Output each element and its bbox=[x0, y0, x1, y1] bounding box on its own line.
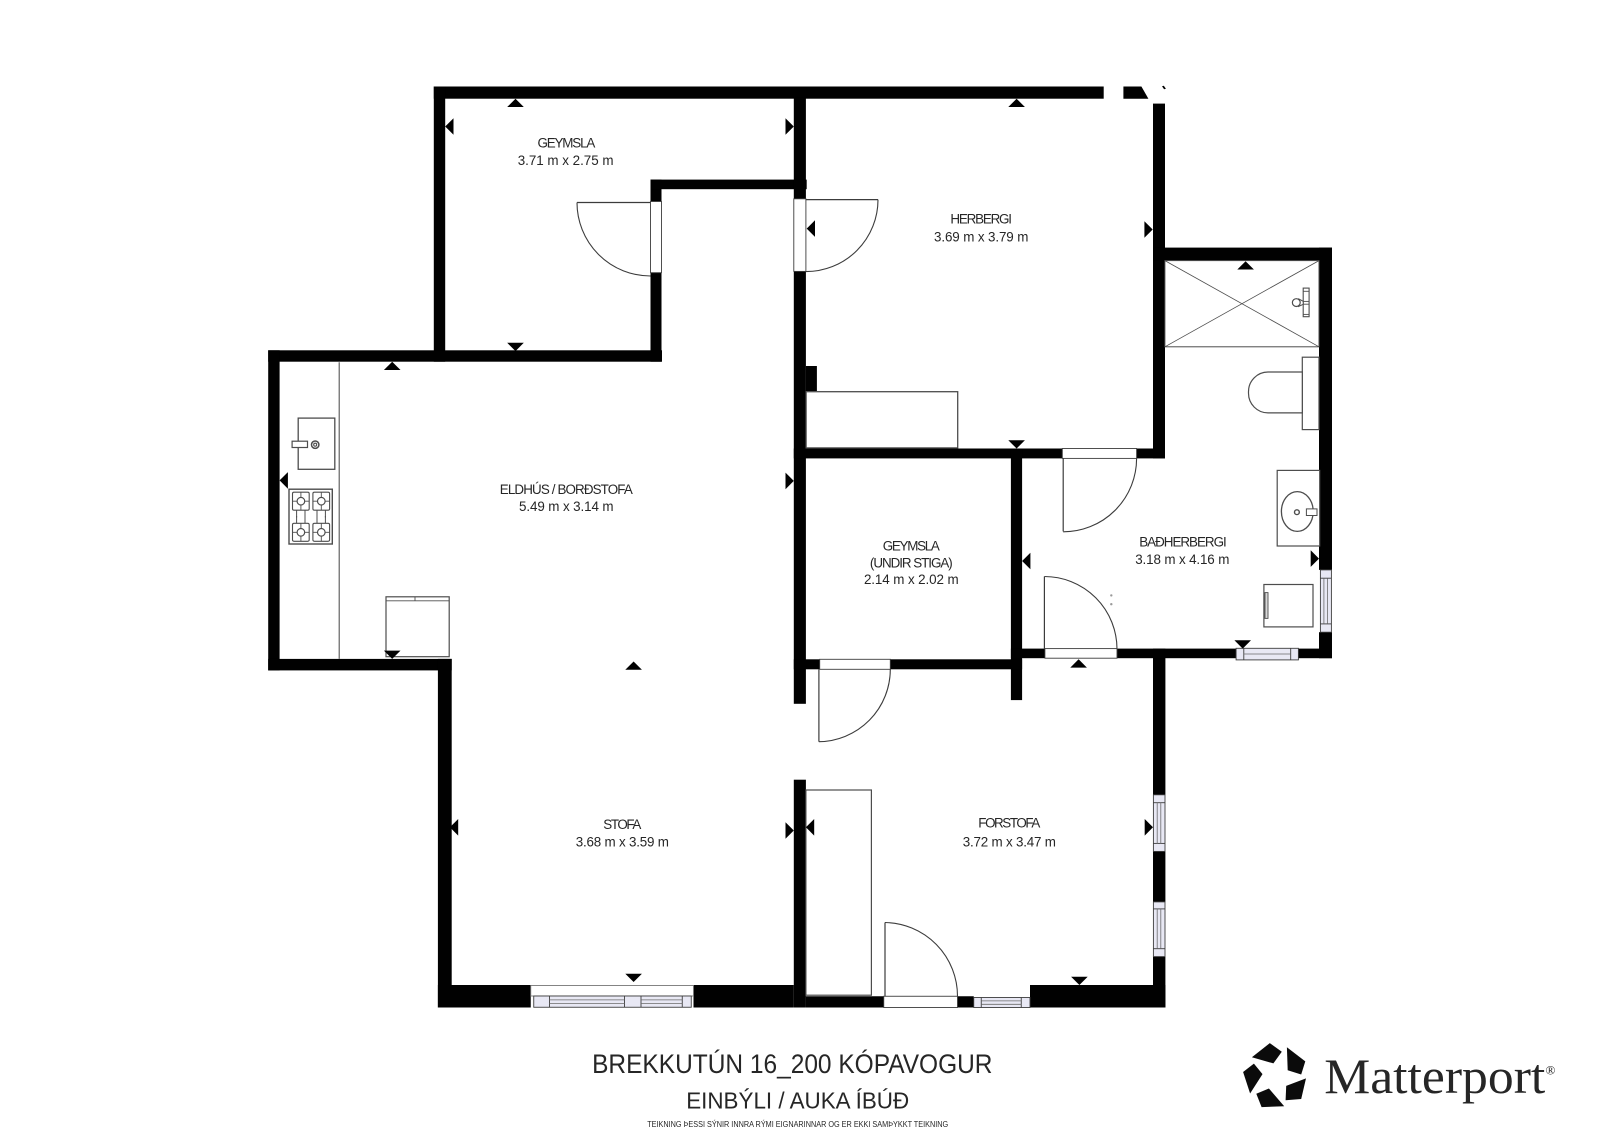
svg-text:(UNDIR STIGA): (UNDIR STIGA) bbox=[870, 556, 953, 571]
svg-text:GEYMSLA: GEYMSLA bbox=[538, 136, 596, 151]
svg-text:HERBERGI: HERBERGI bbox=[950, 212, 1012, 227]
svg-text:3.18 m x 4.16 m: 3.18 m x 4.16 m bbox=[1135, 552, 1229, 567]
svg-text:BAÐHERBERGI: BAÐHERBERGI bbox=[1139, 535, 1227, 550]
svg-text:3.72 m x 3.47 m: 3.72 m x 3.47 m bbox=[963, 835, 1056, 850]
svg-text:2.14 m x 2.02 m: 2.14 m x 2.02 m bbox=[864, 572, 959, 587]
svg-text:EINBÝLI / AUKA ÍBÚÐ: EINBÝLI / AUKA ÍBÚÐ bbox=[686, 1087, 909, 1113]
svg-text:STOFA: STOFA bbox=[603, 817, 641, 832]
svg-text:FORSTOFA: FORSTOFA bbox=[978, 816, 1040, 831]
svg-text:GEYMSLA: GEYMSLA bbox=[883, 539, 940, 554]
svg-text:ELDHÚS / BORÐSTOFA: ELDHÚS / BORÐSTOFA bbox=[500, 482, 633, 497]
svg-text:3.71 m x 2.75 m: 3.71 m x 2.75 m bbox=[518, 153, 614, 168]
svg-text:Matterport: Matterport bbox=[1324, 1048, 1545, 1104]
svg-text:5.49 m x 3.14 m: 5.49 m x 3.14 m bbox=[519, 499, 614, 514]
svg-text:BREKKUTÚN 16_200 KÓPAVOGUR: BREKKUTÚN 16_200 KÓPAVOGUR bbox=[592, 1048, 992, 1079]
svg-text:TEIKNING ÞESSI SÝNIR INNRA RÝM: TEIKNING ÞESSI SÝNIR INNRA RÝMI EIGNARIN… bbox=[647, 1119, 948, 1129]
svg-text:3.69 m x 3.79 m: 3.69 m x 3.79 m bbox=[934, 230, 1028, 245]
svg-text:3.68 m x 3.59 m: 3.68 m x 3.59 m bbox=[576, 835, 669, 850]
svg-text:®: ® bbox=[1546, 1063, 1556, 1078]
